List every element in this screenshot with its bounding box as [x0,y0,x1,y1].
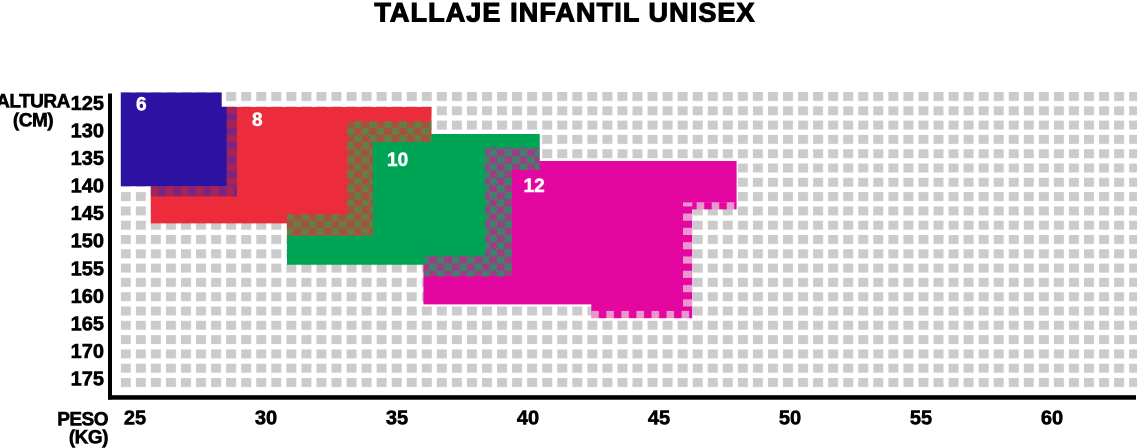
svg-text:ALTURA: ALTURA [0,92,71,113]
svg-text:125: 125 [71,93,104,115]
svg-text:155: 155 [71,258,104,280]
svg-text:8: 8 [252,110,263,131]
svg-text:35: 35 [386,408,408,430]
svg-text:(KG): (KG) [69,428,108,448]
svg-text:50: 50 [779,408,801,430]
svg-text:10: 10 [387,150,408,171]
svg-text:30: 30 [255,408,277,430]
svg-text:60: 60 [1041,408,1063,430]
svg-text:165: 165 [71,313,104,335]
svg-text:55: 55 [910,408,932,430]
svg-text:170: 170 [71,341,104,363]
svg-text:160: 160 [71,286,104,308]
svg-text:25: 25 [124,408,146,430]
svg-text:135: 135 [71,148,104,170]
svg-text:40: 40 [517,408,539,430]
svg-text:(CM): (CM) [13,111,53,132]
svg-text:130: 130 [71,121,104,143]
svg-text:140: 140 [71,176,104,198]
svg-text:45: 45 [648,408,670,430]
svg-text:6: 6 [136,95,147,116]
svg-text:TALLAJE INFANTIL UNISEX: TALLAJE INFANTIL UNISEX [374,0,755,28]
svg-text:175: 175 [71,368,104,390]
svg-text:145: 145 [71,203,104,225]
svg-text:12: 12 [524,176,545,197]
svg-text:150: 150 [71,231,104,253]
